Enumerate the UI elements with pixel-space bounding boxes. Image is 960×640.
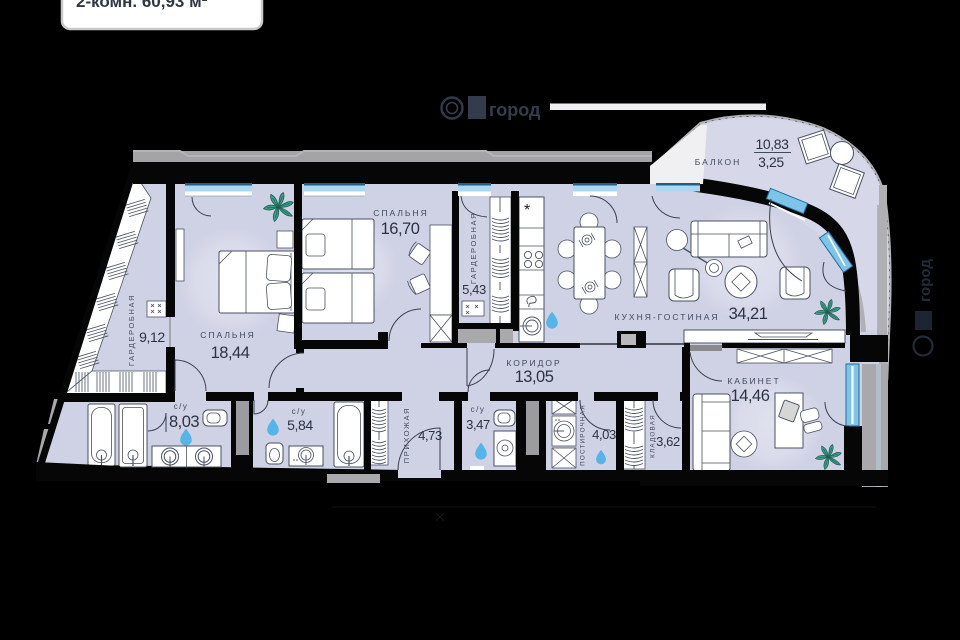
svg-text:ПРИХОЖАЯ: ПРИХОЖАЯ	[402, 407, 411, 463]
svg-text:ГАРДЕРОБНАЯ: ГАРДЕРОБНАЯ	[469, 212, 478, 284]
svg-text:9,12: 9,12	[139, 329, 165, 345]
svg-text:с/у: с/у	[471, 405, 486, 414]
svg-text:3,25: 3,25	[758, 154, 784, 170]
svg-text:16,70: 16,70	[381, 220, 420, 238]
svg-text:*: *	[524, 202, 530, 219]
svg-text:КАБИНЕТ: КАБИНЕТ	[727, 376, 780, 386]
svg-text:4,73: 4,73	[418, 428, 442, 443]
svg-text:2-комн. 60,93 м²: 2-комн. 60,93 м²	[76, 0, 208, 11]
svg-text:34,21: 34,21	[729, 305, 768, 323]
svg-text:5,43: 5,43	[462, 282, 486, 297]
svg-text:СПАЛЬНЯ: СПАЛЬНЯ	[373, 208, 429, 218]
svg-text:город: город	[489, 100, 541, 120]
svg-text:с/у: с/у	[292, 407, 307, 416]
svg-text:3,62: 3,62	[656, 434, 680, 449]
svg-text:СПАЛЬНЯ: СПАЛЬНЯ	[200, 330, 256, 340]
svg-text:ГАРДЕРОБНАЯ: ГАРДЕРОБНАЯ	[127, 294, 136, 366]
svg-text:КОРИДОР: КОРИДОР	[506, 358, 561, 368]
svg-text:10,83: 10,83	[755, 136, 789, 152]
svg-text:4,03: 4,03	[592, 427, 616, 442]
svg-text:3,47: 3,47	[466, 417, 490, 432]
svg-text:5,84: 5,84	[287, 417, 313, 433]
svg-text:с/у: с/у	[174, 402, 189, 411]
svg-text:БАЛКОН: БАЛКОН	[695, 157, 741, 167]
svg-text:14,46: 14,46	[731, 387, 770, 405]
svg-text:18,44: 18,44	[211, 344, 250, 362]
svg-text:13,05: 13,05	[515, 368, 554, 386]
svg-text:КУХНЯ-ГОСТИНАЯ: КУХНЯ-ГОСТИНАЯ	[614, 312, 719, 322]
svg-text:8,03: 8,03	[169, 413, 199, 431]
svg-text:ПОСТИРОЧНАЯ: ПОСТИРОЧНАЯ	[580, 404, 587, 466]
svg-text:город: город	[917, 259, 934, 302]
